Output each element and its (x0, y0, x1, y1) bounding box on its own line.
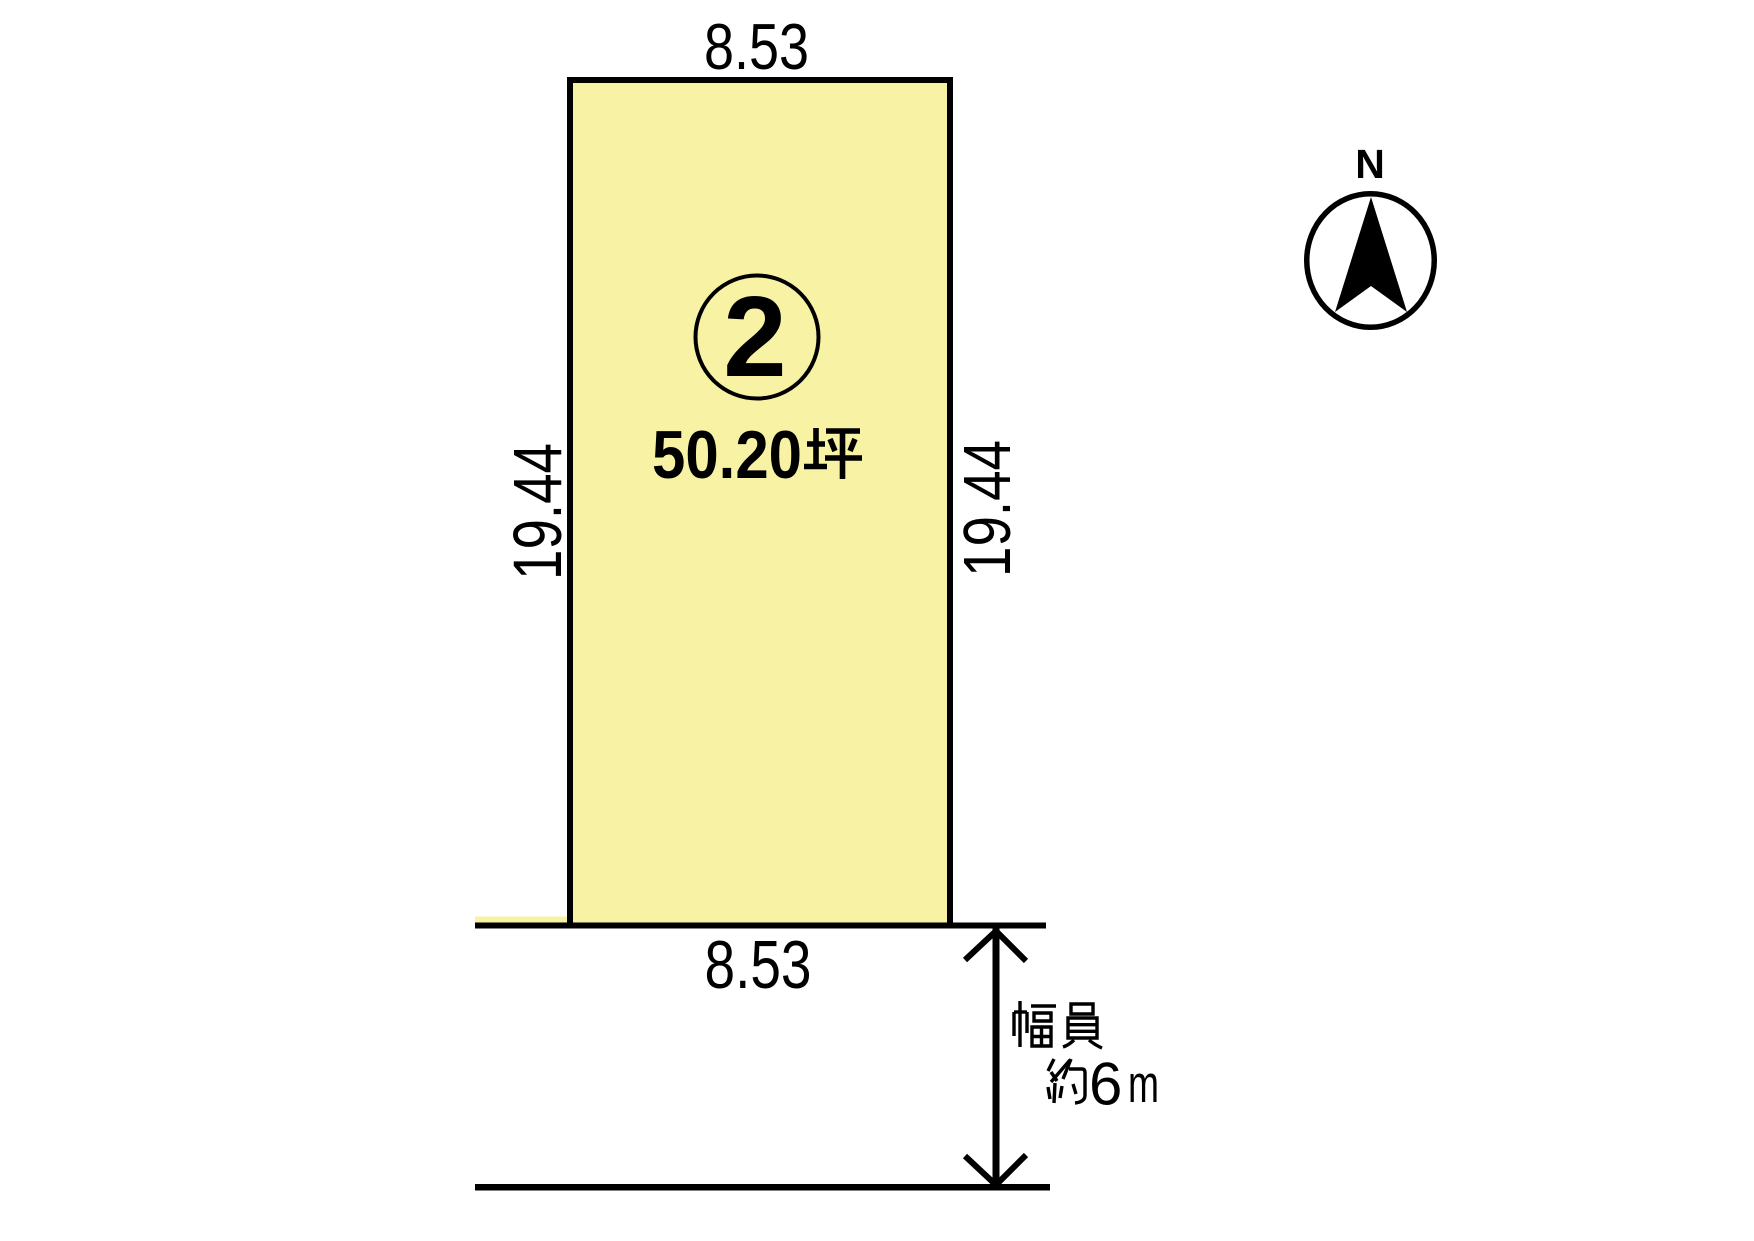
svg-text:N: N (1355, 141, 1385, 187)
svg-text:2: 2 (723, 274, 786, 401)
svg-text:m: m (1128, 1055, 1159, 1114)
svg-text:19.44: 19.44 (950, 440, 1025, 577)
svg-text:8.53: 8.53 (704, 10, 809, 83)
svg-text:8.53: 8.53 (705, 927, 812, 1003)
svg-text:6: 6 (1089, 1051, 1122, 1118)
svg-text:50.20: 50.20 (652, 417, 802, 493)
svg-text:19.44: 19.44 (499, 443, 576, 580)
